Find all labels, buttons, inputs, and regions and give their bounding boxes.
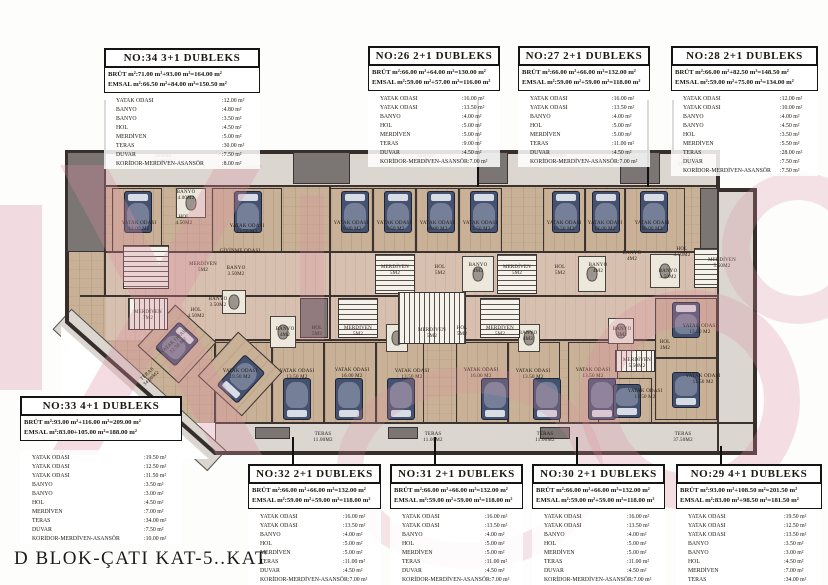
room-row: YATAK ODASI:13.50 m² [688,531,820,540]
unit-info-no26: NO:26 2+1 DUBLEKS BRÜT m²:66.00 m²+64.00… [368,46,500,167]
room-area-value: :8.00 m² [222,160,258,169]
room-area-value: :34.00 m² [144,517,180,526]
room-area-value: :19.50 m² [144,454,180,463]
unit-areas: BRÜT m²:66.00 m²+66.00 m²=132.00 m² EMSA… [390,484,523,509]
room-row: TERAS:9.00 m² [380,140,498,149]
room-row: BANYO:4.00 m² [380,113,498,122]
room-area-value: :7.00 m² [468,158,498,167]
unit-title: NO:29 4+1 DUBLEKS [676,464,822,484]
room-label: HOL [402,540,414,549]
room-row: YATAK ODASI:10.00 m² [683,104,816,113]
room-row: YATAK ODASI:16.00 m² [402,513,521,522]
room-area-value: :13.50 m² [485,522,521,531]
room-label: YATAK ODASI [116,97,154,106]
room-row: YATAK ODASI:12.00 m² [116,97,258,106]
room-row: TERAS:28.00 m² [683,149,816,158]
room-row: MERDİVEN:5.00 m² [260,549,379,558]
room-row: HOL:5.00 m² [530,122,648,131]
room-label: KORİDOR-MERDİVEN-ASANSÖR [544,576,632,585]
unit-emsal: EMSAL m²:59.00 m²+57.00 m²=116.00 m² [372,78,496,88]
room-row: HOL:5.00 m² [260,540,379,549]
unit-info-no31: NO:31 2+1 DUBLEKS BRÜT m²:66.00 m²+66.00… [390,464,523,585]
room-area-value: :10.00 m² [780,104,816,113]
room-row: MERDİVEN:5.00 m² [544,549,663,558]
unit-info-no28: NO:28 2+1 DUBLEKS BRÜT m²:66.00 m²+82.50… [671,46,818,176]
unit-emsal: EMSAL m²:59.00 m²+59.00 m²=118.00 m² [536,496,661,506]
room-label: MERDİVEN [683,140,714,149]
room-row: KORİDOR-MERDİVEN-ASANSÖR:7.00 m² [260,576,379,585]
room-area-value: :5.00 m² [462,131,498,140]
unit-emsal: EMSAL m²:59.00 m²+59.00 m²=118.00 m² [522,78,646,88]
room-label: DUVAR [530,149,550,158]
unit-brut: BRÜT m²:66.00 m²+66.00 m²=132.00 m² [536,486,661,496]
room-area-value: :5.00 m² [627,549,663,558]
room-area-value: :5.00 m² [343,549,379,558]
room-row: YATAK ODASI:16.00 m² [260,513,379,522]
room-area-value: :3.50 m² [222,115,258,124]
unit-brut: BRÜT m²:66.00 m²+82.50 m²=148.50 m² [675,68,814,78]
room-area-value: :4.50 m² [780,122,816,131]
room-area-value: :11.00 m² [343,558,379,567]
room-area-value: :5.00 m² [485,540,521,549]
room-label: TERAS [683,149,701,158]
room-label: HOL [32,499,44,508]
room-area-value: :9.00 m² [462,140,498,149]
unit-room-list: YATAK ODASI:12.00 m²YATAK ODASI:10.00 m²… [671,91,818,176]
unit-title: NO:26 2+1 DUBLEKS [368,46,500,66]
unit-title: NO:30 2+1 DUBLEKS [532,464,665,484]
room-row: TERAS:34.00 m² [32,517,180,526]
room-label: YATAK ODASI [32,472,70,481]
room-area-value: :5.00 m² [462,122,498,131]
room-label: KORİDOR-MERDİVEN-ASANSÖR [683,167,771,176]
room-row: HOL:4.50 m² [32,499,180,508]
unit-info-no33: NO:33 4+1 DUBLEKS BRÜT m²:93.00 m²+116.0… [20,396,182,544]
room-area-value: :5.50 m² [780,140,816,149]
room-row: BANYO:3.00 m² [32,490,180,499]
unit-areas: BRÜT m²:66.00 m²+66.00 m²=132.00 m² EMSA… [248,484,381,509]
room-area-value: :4.50 m² [612,149,648,158]
room-label: YATAK ODASI [530,104,568,113]
room-label: BANYO [380,113,401,122]
unit-info-no29: NO:29 4+1 DUBLEKS BRÜT m²:93.00 m²+108.5… [676,464,822,585]
room-label: BANYO [683,113,704,122]
room-area-value: :3.00 m² [784,549,820,558]
room-area-value: :7.00 m² [618,158,648,167]
room-label: TERAS [116,142,134,151]
room-area-value: :11.00 m² [627,558,663,567]
unit-info-no30: NO:30 2+1 DUBLEKS BRÜT m²:66.00 m²+66.00… [532,464,665,585]
room-row: TERAS:34.00 m² [688,576,820,585]
room-label: YATAK ODASI [32,463,70,472]
unit-areas: BRÜT m²:71.00 m²+93.00 m²=164.00 m² EMSA… [104,68,260,93]
room-area-value: :12.50 m² [784,522,820,531]
room-label: YATAK ODASI [530,95,568,104]
unit-title: NO:31 2+1 DUBLEKS [390,464,523,484]
room-row: YATAK ODASI:13.50 m² [544,522,663,531]
room-row: MERDİVEN:5.00 m² [530,131,648,140]
room-row: YATAK ODASI:13.50 m² [530,104,648,113]
room-row: TERAS:30.00 m² [116,142,258,151]
unit-room-list: YATAK ODASI:19.50 m²YATAK ODASI:12.50 m²… [676,509,822,585]
room-row: KORİDOR-MERDİVEN-ASANSÖR:7.00 m² [530,158,648,167]
room-area-value: :30.00 m² [222,142,258,151]
unit-areas: BRÜT m²:66.00 m²+66.00 m²=132.00 m² EMSA… [532,484,665,509]
room-label: YATAK ODASI [544,513,582,522]
room-label: DUVAR [380,149,400,158]
room-label: DUVAR [683,158,703,167]
room-area-value: :7.00 m² [348,576,379,585]
room-label: YATAK ODASI [380,95,418,104]
room-label: BANYO [688,549,709,558]
unit-room-list: YATAK ODASI:19.50 m²YATAK ODASI:12.50 m²… [20,450,182,544]
room-row: YATAK ODASI:11.50 m² [32,472,180,481]
room-area-value: :3.50 m² [784,540,820,549]
room-label: DUVAR [544,567,564,576]
room-row: DUVAR:4.50 m² [402,567,521,576]
room-area-value: :13.50 m² [343,522,379,531]
room-row: YATAK ODASI:16.00 m² [380,95,498,104]
room-area-value: :5.00 m² [343,540,379,549]
room-area-value: :4.00 m² [780,113,816,122]
room-area-value: :7.50 m² [780,167,816,176]
room-label: TERAS [380,140,398,149]
room-label: YATAK ODASI [260,522,298,531]
room-row: YATAK ODASI:12.50 m² [32,463,180,472]
room-label: KORİDOR-MERDİVEN-ASANSÖR [530,158,618,167]
room-row: HOL:4.50 m² [116,124,258,133]
room-label: HOL [530,122,542,131]
room-label: MERDİVEN [380,131,411,140]
room-row: KORİDOR-MERDİVEN-ASANSÖR:7.00 m² [544,576,663,585]
room-area-value: :16.00 m² [343,513,379,522]
room-row: BANYO:4.00 m² [260,531,379,540]
room-row: DUVAR:7.50 m² [116,151,258,160]
room-label: MERDİVEN [544,549,575,558]
room-label: HOL [544,540,556,549]
room-row: BANYO:3.50 m² [32,481,180,490]
room-label: KORİDOR-MERDİVEN-ASANSÖR [402,576,490,585]
room-row: DUVAR:4.50 m² [530,149,648,158]
room-label: KORİDOR-MERDİVEN-ASANSÖR [116,160,204,169]
room-row: MERDİVEN:7.00 m² [688,567,820,576]
room-row: HOL:5.00 m² [380,122,498,131]
unit-brut: BRÜT m²:66.00 m²+66.00 m²=132.00 m² [522,68,646,78]
room-label: YATAK ODASI [683,95,721,104]
room-label: BANYO [530,113,551,122]
room-area-value: :16.00 m² [485,513,521,522]
room-label: TERAS [402,558,420,567]
room-area-value: :16.00 m² [462,95,498,104]
room-area-value: :4.00 m² [485,531,521,540]
room-label: YATAK ODASI [402,522,440,531]
room-row: YATAK ODASI:16.00 m² [544,513,663,522]
room-row: YATAK ODASI:19.50 m² [688,513,820,522]
unit-emsal: EMSAL m²:83.00 m²+98.50 m²=181.50 m² [680,496,818,506]
room-area-value: :4.00 m² [343,531,379,540]
room-area-value: :12.00 m² [222,97,258,106]
room-area-value: :13.50 m² [784,531,820,540]
room-area-value: :4.50 m² [343,567,379,576]
room-label: BANYO [260,531,281,540]
room-label: BANYO [116,106,137,115]
unit-brut: BRÜT m²:66.00 m²+66.00 m²=132.00 m² [394,486,519,496]
room-row: MERDİVEN:5.00 m² [402,549,521,558]
room-row: BANYO:4.00 m² [402,531,521,540]
room-row: DUVAR:4.50 m² [260,567,379,576]
room-row: HOL:5.00 m² [544,540,663,549]
unit-room-list: YATAK ODASI:16.00 m²YATAK ODASI:13.50 m²… [368,91,500,167]
room-area-value: :11.50 m² [144,472,180,481]
unit-emsal: EMSAL m²:59.00 m²+75.00 m²=134.00 m² [675,78,814,88]
unit-info-no34: NO:34 3+1 DUBLEKS BRÜT m²:71.00 m²+93.00… [104,48,260,169]
room-row: KORİDOR-MERDİVEN-ASANSÖR:7.00 m² [380,158,498,167]
room-label: YATAK ODASI [32,454,70,463]
room-row: TERAS:11.00 m² [530,140,648,149]
room-label: YATAK ODASI [688,522,726,531]
unit-emsal: EMSAL m²:59.00 m²+59.00 m²=118.00 m² [394,496,519,506]
room-row: MERDİVEN:5.00 m² [116,133,258,142]
room-label: HOL [116,124,128,133]
room-row: HOL:5.00 m² [402,540,521,549]
room-area-value: :7.00 m² [632,576,663,585]
room-area-value: :7.50 m² [222,151,258,160]
room-row: MERDİVEN:7.00 m² [32,508,180,517]
unit-areas: BRÜT m²:93.00 m²+116.00 m²=209.00 m² EMS… [20,416,182,441]
unit-info-no27: NO:27 2+1 DUBLEKS BRÜT m²:66.00 m²+66.00… [518,46,650,167]
room-area-value: :4.50 m² [627,567,663,576]
room-row: TERAS:11.00 m² [402,558,521,567]
room-row: BANYO:3.50 m² [116,115,258,124]
unit-areas: BRÜT m²:66.00 m²+64.00 m²=130.00 m² EMSA… [368,66,500,91]
room-area-value: :4.00 m² [462,113,498,122]
unit-brut: BRÜT m²:66.00 m²+66.00 m²=132.00 m² [252,486,377,496]
room-label: TERAS [544,558,562,567]
room-label: BANYO [402,531,423,540]
unit-room-list: YATAK ODASI:16.00 m²YATAK ODASI:13.50 m²… [532,509,665,585]
room-row: KORİDOR-MERDİVEN-ASANSÖR:7.50 m² [683,167,816,176]
room-row: DUVAR:4.50 m² [544,567,663,576]
room-row: YATAK ODASI:13.50 m² [380,104,498,113]
unit-brut: BRÜT m²:93.00 m²+108.50 m²=201.50 m² [680,486,818,496]
room-label: BANYO [688,540,709,549]
room-area-value: :19.50 m² [784,513,820,522]
room-label: TERAS [32,517,50,526]
room-area-value: :4.00 m² [627,531,663,540]
room-row: TERAS:11.00 m² [260,558,379,567]
room-label: HOL [380,122,392,131]
room-row: BANYO:4.50 m² [683,122,816,131]
room-row: BANYO:4.80 m² [116,106,258,115]
room-area-value: :5.00 m² [627,540,663,549]
room-row: HOL:4.50 m² [688,558,820,567]
room-label: MERDİVEN [530,131,561,140]
room-label: DUVAR [116,151,136,160]
unit-room-list: YATAK ODASI:12.00 m²BANYO:4.80 m²BANYO:3… [104,93,260,169]
room-area-value: :4.50 m² [784,558,820,567]
room-area-value: :7.50 m² [780,158,816,167]
room-label: MERDİVEN [116,133,147,142]
room-area-value: :4.50 m² [485,567,521,576]
room-area-value: :13.50 m² [462,104,498,113]
room-area-value: :4.00 m² [612,113,648,122]
room-area-value: :5.00 m² [485,549,521,558]
room-row: YATAK ODASI:19.50 m² [32,454,180,463]
room-area-value: :7.00 m² [784,567,820,576]
unit-emsal: EMSAL m²:83.00+105.00 m²=188.00 m² [24,428,178,438]
room-area-value: :11.00 m² [485,558,521,567]
room-label: KORİDOR-MERDİVEN-ASANSÖR [32,535,120,544]
room-label: TERAS [530,140,548,149]
room-label: BANYO [32,490,53,499]
room-area-value: :13.50 m² [612,104,648,113]
room-label: KORİDOR-MERDİVEN-ASANSÖR [380,158,468,167]
room-label: MERDİVEN [402,549,433,558]
room-label: HOL [683,131,695,140]
unit-title: NO:27 2+1 DUBLEKS [518,46,650,66]
room-area-value: :3.50 m² [780,131,816,140]
unit-room-list: YATAK ODASI:16.00 m²YATAK ODASI:13.50 m²… [390,509,523,585]
room-row: YATAK ODASI:13.50 m² [402,522,521,531]
room-row: MERDİVEN:5.50 m² [683,140,816,149]
unit-areas: BRÜT m²:93.00 m²+108.50 m²=201.50 m² EMS… [676,484,822,509]
room-area-value: :4.50 m² [144,499,180,508]
room-area-value: :5.00 m² [222,133,258,142]
room-row: BANYO:4.00 m² [544,531,663,540]
room-area-value: :28.00 m² [780,149,816,158]
room-label: HOL [688,558,700,567]
unit-brut: BRÜT m²:93.00 m²+116.00 m²=209.00 m² [24,418,178,428]
room-label: TERAS [688,576,706,585]
room-row: BANYO:4.00 m² [530,113,648,122]
room-area-value: :34.00 m² [784,576,820,585]
room-row: BANYO:4.00 m² [683,113,816,122]
room-label: YATAK ODASI [688,513,726,522]
room-area-value: :4.50 m² [222,124,258,133]
floor-plan-sheet: TERAS30.00M2TERAS9.00M2TERAS11.00M2TERAS… [0,0,828,585]
room-row: BANYO:3.50 m² [688,540,820,549]
room-area-value: :3.50 m² [144,481,180,490]
room-area-value: :3.00 m² [144,490,180,499]
room-row: YATAK ODASI:13.50 m² [260,522,379,531]
room-label: YATAK ODASI [260,513,298,522]
room-label: YATAK ODASI [688,531,726,540]
room-area-value: :4.80 m² [222,106,258,115]
room-label: BANYO [116,115,137,124]
room-row: YATAK ODASI:12.00 m² [683,95,816,104]
room-row: HOL:3.50 m² [683,131,816,140]
room-label: MERDİVEN [688,567,719,576]
room-area-value: :4.50 m² [462,149,498,158]
room-area-value: :16.00 m² [612,95,648,104]
room-row: MERDİVEN:5.00 m² [380,131,498,140]
room-row: KORİDOR-MERDİVEN-ASANSÖR:8.00 m² [116,160,258,169]
drawing-title: D BLOK-ÇATI KAT-5..KAT [14,548,268,570]
room-label: YATAK ODASI [380,104,418,113]
room-label: KORİDOR-MERDİVEN-ASANSÖR [260,576,348,585]
room-area-value: :13.50 m² [627,522,663,531]
room-row: BANYO:3.00 m² [688,549,820,558]
room-label: YATAK ODASI [402,513,440,522]
room-area-value: :7.00 m² [144,508,180,517]
room-area-value: :12.50 m² [144,463,180,472]
room-area-value: :5.00 m² [612,131,648,140]
unit-title: NO:28 2+1 DUBLEKS [671,46,818,66]
room-row: YATAK ODASI:16.00 m² [530,95,648,104]
unit-room-list: YATAK ODASI:16.00 m²YATAK ODASI:13.50 m²… [518,91,650,167]
room-label: BANYO [683,122,704,131]
room-label: BANYO [32,481,53,490]
unit-emsal: EMSAL m²:66.50 m²+84.00 m²=150.50 m² [108,80,256,90]
room-label: YATAK ODASI [683,104,721,113]
unit-areas: BRÜT m²:66.00 m²+66.00 m²=132.00 m² EMSA… [518,66,650,91]
room-area-value: :10.00 m² [144,535,180,544]
room-label: MERDİVEN [32,508,63,517]
room-area-value: :11.00 m² [612,140,648,149]
room-label: YATAK ODASI [544,522,582,531]
room-area-value: :7.50 m² [144,526,180,535]
unit-areas: BRÜT m²:66.00 m²+82.50 m²=148.50 m² EMSA… [671,66,818,91]
room-row: KORİDOR-MERDİVEN-ASANSÖR:10.00 m² [32,535,180,544]
room-area-value: :16.00 m² [627,513,663,522]
room-area-value: :7.00 m² [490,576,521,585]
room-row: TERAS:11.00 m² [544,558,663,567]
room-row: DUVAR:7.50 m² [32,526,180,535]
unit-title: NO:33 4+1 DUBLEKS [20,396,182,416]
unit-title: NO:34 3+1 DUBLEKS [104,48,260,68]
room-label: DUVAR [32,526,52,535]
unit-emsal: EMSAL m²:59.00 m²+59.00 m²=118.00 m² [252,496,377,506]
room-area-value: :12.00 m² [780,95,816,104]
unit-brut: BRÜT m²:71.00 m²+93.00 m²=164.00 m² [108,70,256,80]
unit-brut: BRÜT m²:66.00 m²+64.00 m²=130.00 m² [372,68,496,78]
room-label: BANYO [544,531,565,540]
unit-title: NO:32 2+1 DUBLEKS [248,464,381,484]
room-row: DUVAR:7.50 m² [683,158,816,167]
room-label: DUVAR [402,567,422,576]
room-row: KORİDOR-MERDİVEN-ASANSÖR:7.00 m² [402,576,521,585]
room-row: DUVAR:4.50 m² [380,149,498,158]
room-area-value: :5.00 m² [612,122,648,131]
room-row: YATAK ODASI:12.50 m² [688,522,820,531]
